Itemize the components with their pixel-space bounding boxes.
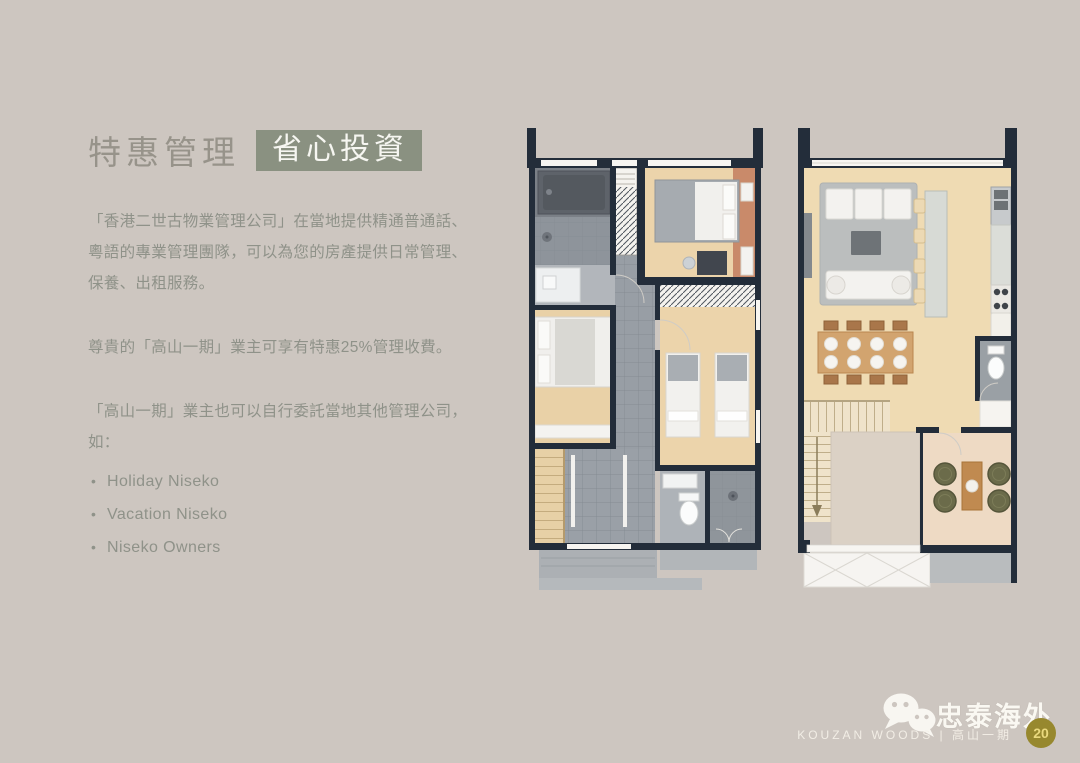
kitchen-counter [991, 187, 1011, 343]
list-item: Vacation Niseko [88, 498, 474, 531]
list-item: Holiday Niseko [88, 465, 474, 498]
bedroom-twin [660, 283, 755, 465]
sofa-area [820, 183, 917, 305]
coffee-table [851, 231, 881, 255]
toilet-room [660, 470, 705, 543]
title-badge: 省心投資 [256, 130, 422, 171]
toilet-room [980, 341, 1011, 427]
page-number-badge: 20 [1026, 718, 1056, 748]
tv-board [804, 213, 812, 278]
floor-plan-level-2 [795, 125, 1025, 592]
bedroom-master [637, 168, 755, 280]
text-column: 特惠管理 省心投資 「香港二世古物業管理公司」在當地提供精通普通話、粵語的專業管… [88, 128, 474, 564]
tatami-room [923, 433, 1011, 545]
paragraph-management-intro: 「香港二世古物業管理公司」在當地提供精通普通話、粵語的專業管理團隊，可以為您的房… [88, 206, 474, 299]
shower-room [710, 470, 755, 543]
floor-plan-level-1 [527, 125, 763, 592]
list-item: Niseko Owners [88, 531, 474, 564]
page-title: 特惠管理 [88, 126, 240, 174]
bathroom [533, 168, 615, 305]
bedroom-2 [533, 310, 615, 443]
platform [831, 432, 920, 545]
stairs [533, 449, 565, 543]
stove [991, 285, 1011, 313]
paragraph-discount: 尊貴的「高山一期」業主可享有特惠25%管理收費。 [88, 332, 474, 363]
deck [804, 553, 1011, 587]
entry-porch [539, 550, 757, 590]
paragraph-alternatives: 「高山一期」業主也可以自行委託當地其他管理公司，如： [88, 396, 474, 458]
desk [697, 251, 727, 275]
slide: 特惠管理 省心投資 「香港二世古物業管理公司」在當地提供精通普通話、粵語的專業管… [0, 0, 1080, 763]
toilet [680, 501, 698, 525]
toilet [988, 357, 1004, 379]
title-row: 特惠管理 省心投資 [88, 128, 474, 172]
slide-caption: KOUZAN WOODS | 高山一期 [778, 726, 1012, 743]
management-company-list: Holiday Niseko Vacation Niseko Niseko Ow… [88, 465, 474, 564]
